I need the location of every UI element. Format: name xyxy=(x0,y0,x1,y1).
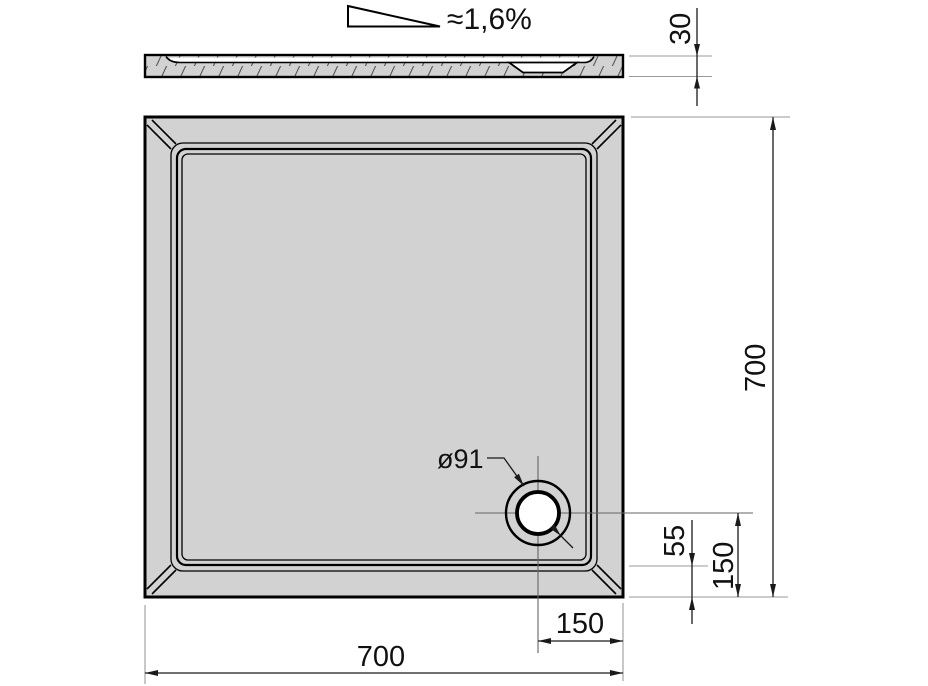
section-view: ≈1,6% 30 xyxy=(145,3,712,106)
dim-30-label: 30 xyxy=(665,13,697,45)
dim-700b-arrow-right xyxy=(610,670,623,676)
dim-depth-700: 700 xyxy=(629,117,790,597)
section-floor-gap xyxy=(170,58,590,62)
dim-150r-label: 150 xyxy=(708,542,740,590)
technical-drawing: ≈1,6% 30 xyxy=(0,0,928,686)
dim-700r-arrow-top xyxy=(770,117,776,130)
dim-floor-55: 55 xyxy=(629,520,708,624)
dim-55-label: 55 xyxy=(659,525,691,557)
dim-150b-arrow-right xyxy=(610,638,623,644)
dim-drain-150-horizontal: 150 xyxy=(538,603,623,681)
dim-150b-label: 150 xyxy=(556,608,604,640)
dim-150b-arrow-left xyxy=(538,638,551,644)
dim-700r-label: 700 xyxy=(740,344,772,392)
dim-drain-150-vertical: 150 xyxy=(708,513,741,597)
dim-30-arrow-bottom xyxy=(694,77,700,89)
slope-symbol-icon xyxy=(348,6,440,27)
dim-700r-arrow-bottom xyxy=(770,584,776,597)
dim-55-arrow-bottom xyxy=(689,597,695,610)
dim-thickness-30: 30 xyxy=(629,8,712,106)
dim-width-700: 700 xyxy=(145,605,623,684)
dim-700b-label: 700 xyxy=(357,641,405,673)
drain-diameter-label: ø91 xyxy=(437,444,484,474)
plan-view: ø91 700 150 55 xyxy=(145,117,790,684)
dim-700b-arrow-left xyxy=(145,670,158,676)
slope-label: ≈1,6% xyxy=(447,3,532,36)
dim-150r-arrow-top xyxy=(735,513,741,526)
